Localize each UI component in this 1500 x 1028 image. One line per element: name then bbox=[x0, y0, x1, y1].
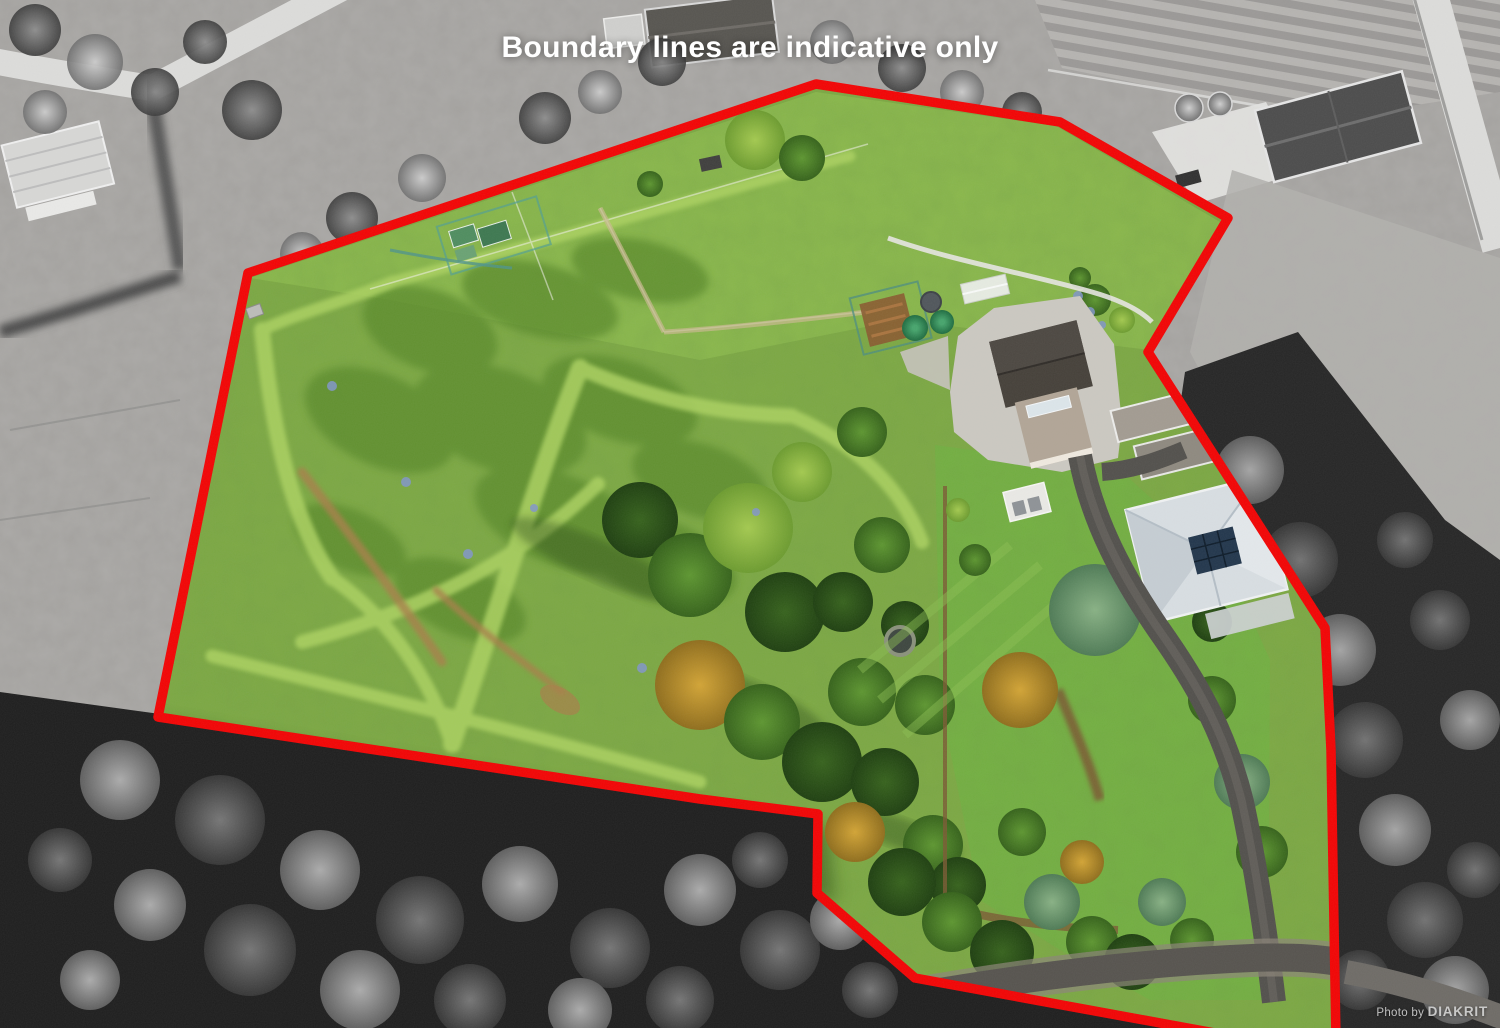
photo-credit-brand: DIAKRIT bbox=[1428, 1004, 1488, 1019]
photo-grain bbox=[0, 0, 1500, 1028]
boundary-disclaimer: Boundary lines are indicative only bbox=[501, 31, 998, 65]
aerial-listing-photo: Boundary lines are indicative only Photo… bbox=[0, 0, 1500, 1028]
aerial-photo-canvas bbox=[0, 0, 1500, 1028]
photo-credit-prefix: Photo by bbox=[1376, 1007, 1424, 1019]
photo-credit: Photo by DIAKRIT bbox=[1376, 1004, 1488, 1019]
